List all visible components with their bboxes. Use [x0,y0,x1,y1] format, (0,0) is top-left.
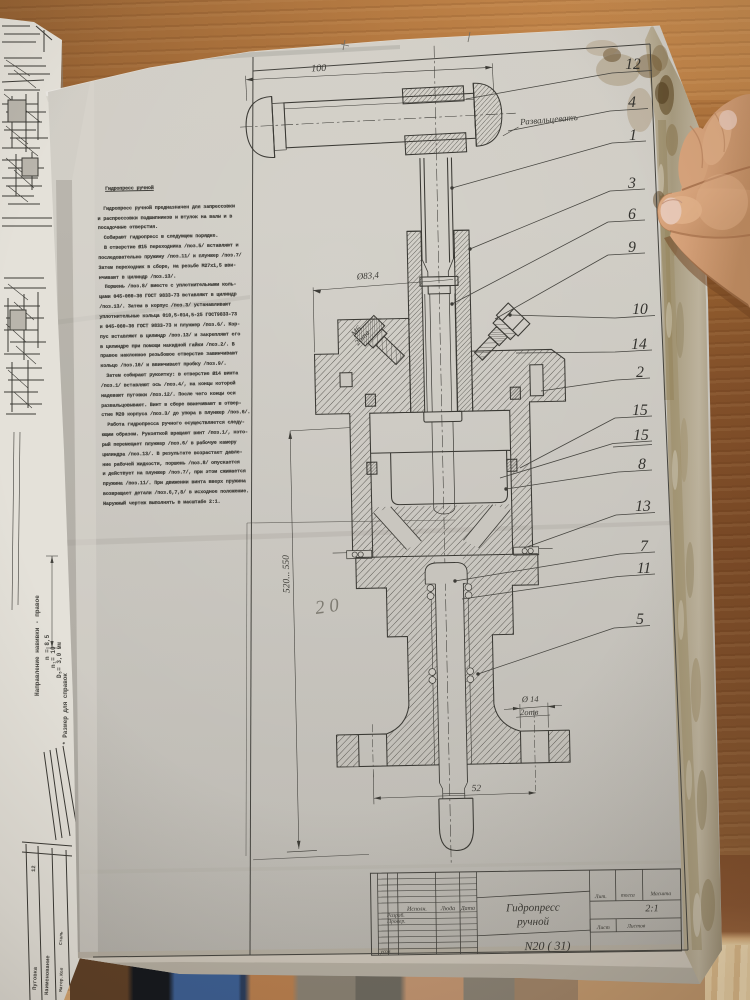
svg-text:Гидропресс: Гидропресс [505,902,560,915]
svg-text:12: 12 [30,865,37,872]
svg-text:Лист: Лист [596,925,610,931]
svg-text:Исполн.: Исполн. [406,906,427,912]
svg-text:13: 13 [635,498,651,515]
svg-text:5: 5 [636,611,644,628]
svg-text:Пуговка: Пуговка [31,966,39,990]
svg-text:52: 52 [472,784,482,794]
svg-text:усов: усов [380,949,392,955]
svg-text:* Размер для справок: * Размер для справок [62,673,69,745]
svg-text:N20 ( 31): N20 ( 31) [523,938,570,953]
svg-text:Направление навивки - правое: Направление навивки - правое [34,595,41,696]
svg-text:2отв: 2отв [520,707,539,717]
svg-text:Сталь: Сталь [58,931,64,945]
svg-text:12: 12 [625,56,641,73]
svg-text:Матер.Кол: Матер.Кол [58,967,65,992]
svg-text:Масшта: Масшта [649,891,671,897]
svg-text:Дата: Дата [460,906,475,912]
svg-text:Наименование: Наименование [43,955,51,996]
svg-text:тогса: тогса [621,893,635,899]
svg-text:ручной: ручной [516,916,550,928]
svg-text:D₅= 3,0 мм: D₅= 3,0 мм [56,642,63,678]
svg-text:Листов: Листов [626,923,646,929]
svg-text:2:1: 2:1 [645,903,658,914]
svg-text:Лит.: Лит. [594,894,607,900]
svg-text:2 0: 2 0 [314,595,341,619]
svg-text:Провер.: Провер. [386,919,406,925]
svg-text:Развальцеватъ: Развальцеватъ [519,112,579,127]
svg-text:Ø83,4: Ø83,4 [355,270,379,282]
svg-text:Люда: Люда [440,905,455,912]
svg-text:520... 550: 520... 550 [282,555,293,593]
svg-text:Ø 14: Ø 14 [521,694,540,704]
svg-text:100: 100 [311,63,327,75]
